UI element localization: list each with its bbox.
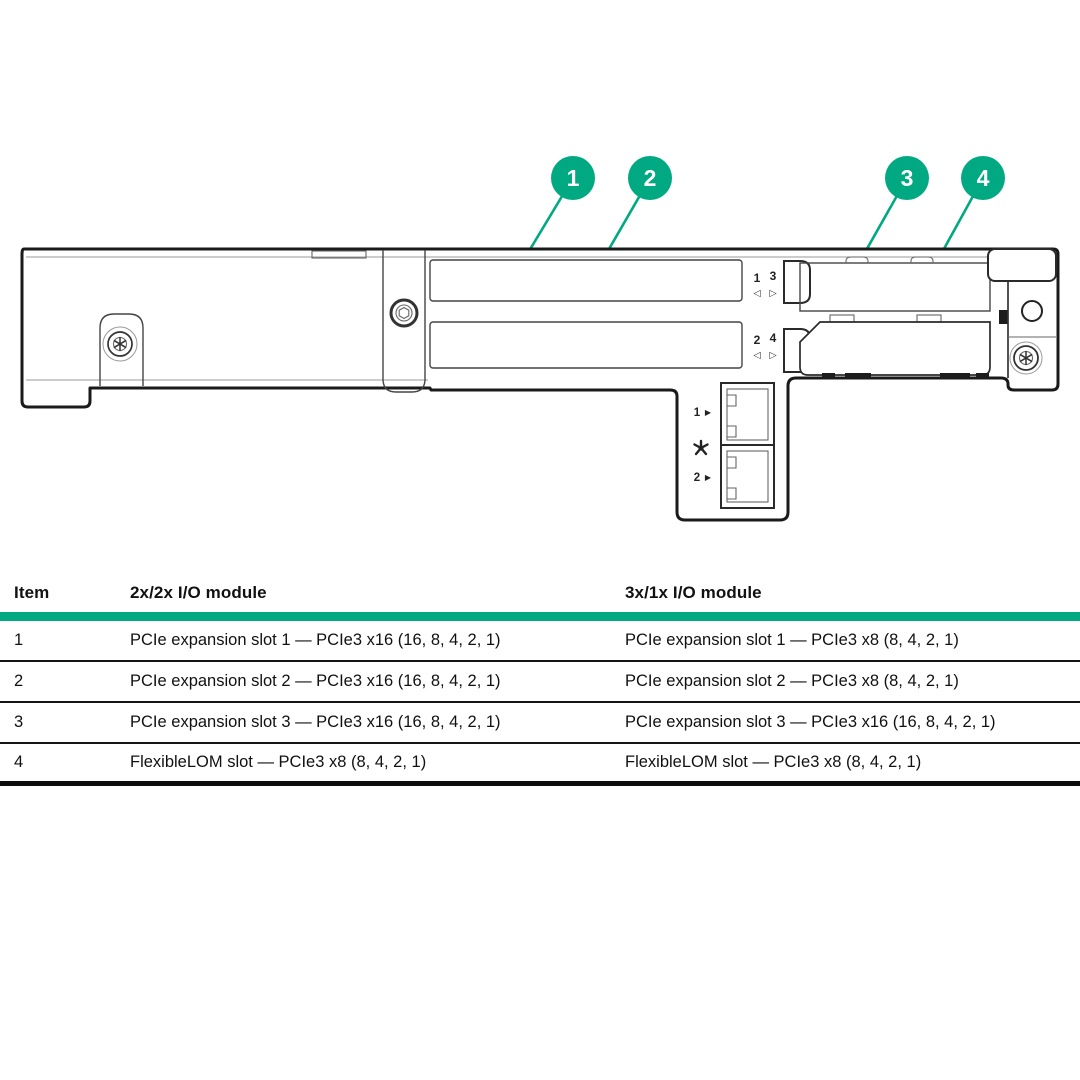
cell-item: 1: [14, 631, 130, 650]
triangle-right-icon: ▶: [705, 473, 712, 482]
bracket-hole: [1022, 301, 1042, 321]
svg-text:1: 1: [567, 165, 580, 191]
callout-2: 2: [628, 156, 672, 200]
bay-gap: [999, 310, 1008, 324]
io-module-table: Item 2x/2x I/O module 3x/1x I/O module 1…: [0, 570, 1080, 786]
table-row: 2 PCIe expansion slot 2 — PCIe3 x16 (16,…: [0, 662, 1080, 703]
callout-4: 4: [961, 156, 1005, 200]
triangle-right-icon: ▷: [769, 350, 777, 361]
svg-text:4: 4: [977, 165, 990, 191]
connector-top: [784, 261, 810, 303]
column-header-3x1x: 3x/1x I/O module: [625, 583, 1080, 612]
svg-text:2: 2: [694, 472, 700, 484]
svg-text:2: 2: [754, 333, 761, 347]
cell-item: 4: [14, 753, 130, 772]
table-row: 4 FlexibleLOM slot — PCIe3 x8 (8, 4, 2, …: [0, 744, 1080, 786]
table-accent-bar: [0, 612, 1080, 621]
triangle-right-icon: ▶: [705, 408, 712, 417]
cell-3x1x: FlexibleLOM slot — PCIe3 x8 (8, 4, 2, 1): [625, 753, 1080, 772]
column-header-item: Item: [14, 583, 130, 612]
cell-item: 3: [14, 713, 130, 732]
svg-text:4: 4: [770, 331, 777, 345]
right-thumbscrew: [1010, 342, 1042, 374]
triangle-left-icon: ◁: [753, 350, 761, 361]
triangle-left-icon: ◁: [753, 288, 761, 299]
flexiblelom-bay: [800, 315, 990, 378]
table-row: 1 PCIe expansion slot 1 — PCIe3 x16 (16,…: [0, 621, 1080, 662]
svg-text:2: 2: [644, 165, 657, 191]
chassis-outline: [22, 249, 1058, 520]
cell-2x2x: PCIe expansion slot 1 — PCIe3 x16 (16, 8…: [130, 631, 625, 650]
column-header-2x2x: 2x/2x I/O module: [130, 583, 625, 612]
cell-3x1x: PCIe expansion slot 3 — PCIe3 x16 (16, 8…: [625, 713, 1080, 732]
callout-3: 3: [885, 156, 929, 200]
cell-item: 2: [14, 672, 130, 691]
server-rear-diagram: 1 3 ◁ ▷ 2 4 ◁ ▷: [0, 0, 1080, 560]
table-header-row: Item 2x/2x I/O module 3x/1x I/O module: [0, 570, 1080, 612]
cell-2x2x: PCIe expansion slot 3 — PCIe3 x16 (16, 8…: [130, 713, 625, 732]
cell-3x1x: PCIe expansion slot 2 — PCIe3 x8 (8, 4, …: [625, 672, 1080, 691]
table-row: 3 PCIe expansion slot 3 — PCIe3 x16 (16,…: [0, 703, 1080, 744]
cell-3x1x: PCIe expansion slot 1 — PCIe3 x8 (8, 4, …: [625, 631, 1080, 650]
svg-text:3: 3: [770, 269, 777, 283]
svg-text:1: 1: [754, 271, 761, 285]
svg-text:1: 1: [694, 407, 701, 419]
page: 1 3 ◁ ▷ 2 4 ◁ ▷: [0, 0, 1080, 1080]
triangle-right-icon: ▷: [769, 288, 777, 299]
cell-2x2x: FlexibleLOM slot — PCIe3 x8 (8, 4, 2, 1): [130, 753, 625, 772]
callout-1: 1: [551, 156, 595, 200]
cell-2x2x: PCIe expansion slot 2 — PCIe3 x16 (16, 8…: [130, 672, 625, 691]
svg-text:3: 3: [901, 165, 914, 191]
